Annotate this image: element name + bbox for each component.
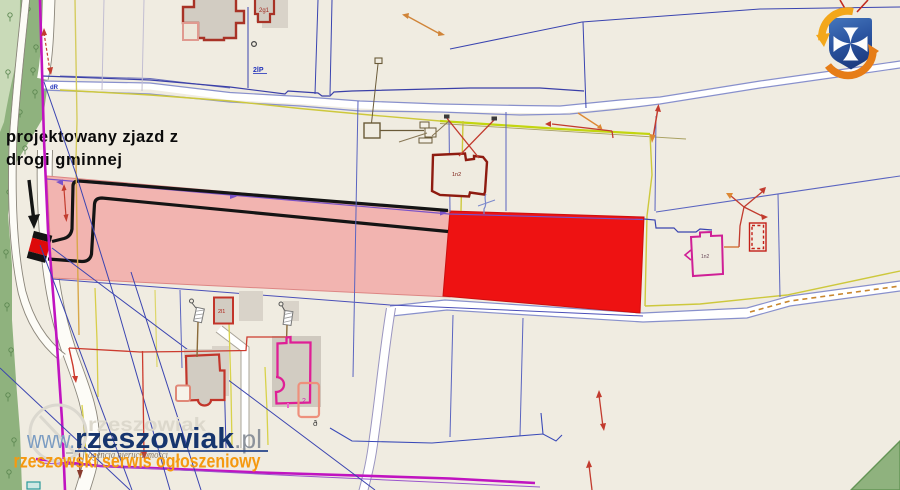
svg-text:drogi gminnej: drogi gminnej (6, 151, 122, 169)
svg-text:2: 2 (302, 398, 306, 405)
svg-text:rzeszowski serwis ogłoszeniowy: rzeszowski serwis ogłoszeniowy (14, 452, 261, 473)
svg-text:www.: www. (26, 427, 75, 454)
svg-text:2g1: 2g1 (259, 8, 270, 14)
svg-text:2lP: 2lP (253, 67, 264, 74)
svg-text:.pl: .pl (234, 424, 262, 454)
svg-text:1n2: 1n2 (701, 254, 710, 260)
svg-text:projektowany zjazd z: projektowany zjazd z (6, 128, 178, 146)
svg-text:ð: ð (313, 419, 318, 428)
svg-text:1n2: 1n2 (452, 172, 461, 178)
svg-text:dR: dR (50, 85, 59, 91)
svg-text:2l1: 2l1 (218, 309, 225, 315)
